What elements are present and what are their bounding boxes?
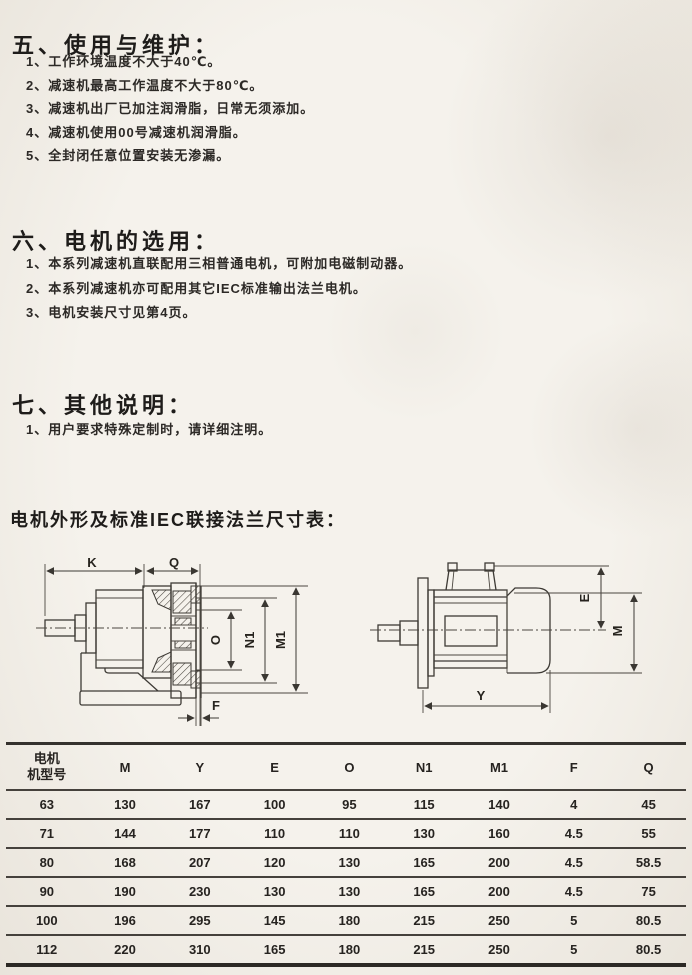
list-item: 5、全封闭任意位置安装无渗漏。 [26,144,314,168]
list-item: 3、减速机出厂已加注润滑脂，日常无须添加。 [26,97,314,121]
cell: 115 [387,790,462,819]
col-header-e: E [237,744,312,791]
cell: 55 [611,819,686,848]
cell: 215 [387,906,462,935]
cell-model: 71 [6,819,88,848]
col-header-n1: N1 [387,744,462,791]
section-heading-other-notes: 七、其他说明： [12,388,194,420]
table-header-row: 电机 机型号 M Y E O N1 M1 F Q [6,744,686,791]
scanned-document-page: 五、使用与维护： 1、工作环境温度不大于40℃。 2、减速机最高工作温度不大于8… [0,0,692,975]
cell: 250 [462,935,537,965]
table-row: 100 196 295 145 180 215 250 5 80.5 [6,906,686,935]
cell: 200 [462,877,537,906]
table-row: 80 168 207 120 130 165 200 4.5 58.5 [6,848,686,877]
list-item: 2、本系列减速机亦可配用其它IEC标准输出法兰电机。 [26,277,412,302]
cell: 75 [611,877,686,906]
cell: 80.5 [611,935,686,965]
cell: 130 [312,877,387,906]
col-header-o: O [312,744,387,791]
col-header-q: Q [611,744,686,791]
cell: 130 [312,848,387,877]
cell: 95 [312,790,387,819]
cell: 167 [162,790,237,819]
cell: 250 [462,906,537,935]
cell: 80.5 [611,906,686,935]
dim-label-m1: M1 [273,631,288,649]
cell: 100 [237,790,312,819]
list-item: 2、减速机最高工作温度不大于80℃。 [26,74,314,98]
cell: 110 [237,819,312,848]
cell: 207 [162,848,237,877]
list-item: 1、工作环境温度不大于40℃。 [26,50,314,74]
cell: 165 [387,848,462,877]
cell: 168 [88,848,163,877]
cell: 215 [387,935,462,965]
table-row: 112 220 310 165 180 215 250 5 80.5 [6,935,686,965]
col-header-motor-model: 电机 机型号 [6,744,88,791]
cell-model: 112 [6,935,88,965]
reducer-side-view-drawing: K Q [28,558,350,756]
cell: 140 [462,790,537,819]
col-header-f: F [536,744,611,791]
cell: 310 [162,935,237,965]
motor-side-view-drawing: E M Y [368,560,668,752]
table-row: 71 144 177 110 110 130 160 4.5 55 [6,819,686,848]
cell: 4 [536,790,611,819]
cell-model: 100 [6,906,88,935]
dim-label-k: K [87,558,97,570]
cell: 165 [237,935,312,965]
cell: 177 [162,819,237,848]
cell: 295 [162,906,237,935]
cell: 130 [88,790,163,819]
cell: 4.5 [536,819,611,848]
dim-label-e: E [577,593,592,602]
cell: 160 [462,819,537,848]
cell: 144 [88,819,163,848]
cell: 110 [312,819,387,848]
cell: 200 [462,848,537,877]
dim-label-q: Q [169,558,179,570]
table-row: 90 190 230 130 130 165 200 4.5 75 [6,877,686,906]
cell: 180 [312,906,387,935]
cell: 230 [162,877,237,906]
cell: 196 [88,906,163,935]
cell-model: 63 [6,790,88,819]
usage-maintenance-list: 1、工作环境温度不大于40℃。 2、减速机最高工作温度不大于80℃。 3、减速机… [26,50,314,168]
dim-label-f: F [212,698,220,713]
cell: 145 [237,906,312,935]
cell: 120 [237,848,312,877]
other-notes-list: 1、用户要求特殊定制时，请详细注明。 [26,418,272,442]
dimension-table-title: 电机外形及标准IEC联接法兰尺寸表： [10,506,346,532]
list-item: 1、本系列减速机直联配用三相普通电机，可附加电磁制动器。 [26,252,412,277]
cell: 45 [611,790,686,819]
col-header-y: Y [162,744,237,791]
dim-label-o: O [208,635,223,645]
col-header-line2: 机型号 [27,767,66,782]
cell: 4.5 [536,877,611,906]
cell: 5 [536,935,611,965]
list-item: 4、减速机使用00号减速机润滑脂。 [26,121,314,145]
cell: 165 [387,877,462,906]
cell: 180 [312,935,387,965]
dim-label-y: Y [477,688,486,703]
cell-model: 90 [6,877,88,906]
cell: 190 [88,877,163,906]
flange-dimension-table: 电机 机型号 M Y E O N1 M1 F Q 63 130 167 100 … [6,742,686,967]
cell: 220 [88,935,163,965]
dim-label-n1: N1 [242,632,257,649]
cell: 4.5 [536,848,611,877]
col-header-m: M [88,744,163,791]
list-item: 3、电机安装尺寸见第4页。 [26,301,412,326]
cell: 130 [387,819,462,848]
cell-model: 80 [6,848,88,877]
cell: 130 [237,877,312,906]
table-row: 63 130 167 100 95 115 140 4 45 [6,790,686,819]
motor-selection-list: 1、本系列减速机直联配用三相普通电机，可附加电磁制动器。 2、本系列减速机亦可配… [26,252,412,326]
dim-label-m: M [610,626,625,637]
cell: 58.5 [611,848,686,877]
col-header-m1: M1 [462,744,537,791]
list-item: 1、用户要求特殊定制时，请详细注明。 [26,418,272,442]
cell: 5 [536,906,611,935]
col-header-line1: 电机 [34,751,60,766]
